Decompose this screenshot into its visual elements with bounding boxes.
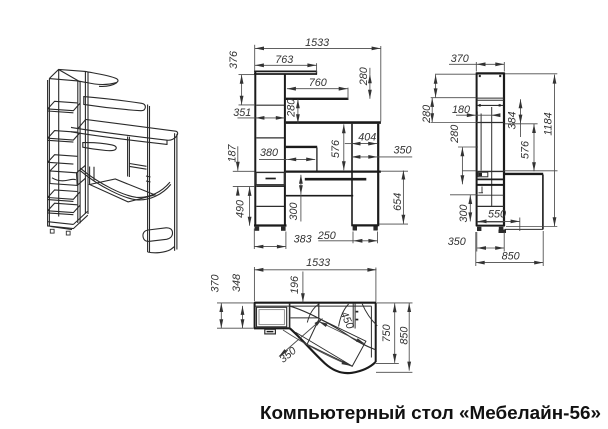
svg-text:280: 280 (286, 99, 298, 118)
svg-text:1184: 1184 (543, 112, 555, 135)
svg-text:370: 370 (209, 274, 221, 292)
svg-text:576: 576 (330, 140, 342, 158)
svg-text:763: 763 (275, 54, 293, 66)
svg-text:490: 490 (235, 200, 247, 218)
svg-text:550: 550 (488, 208, 506, 220)
svg-text:250: 250 (317, 230, 336, 242)
svg-text:760: 760 (309, 77, 327, 89)
svg-text:380: 380 (260, 147, 278, 159)
svg-text:404: 404 (358, 131, 376, 143)
svg-text:351: 351 (233, 107, 251, 119)
svg-text:654: 654 (392, 193, 404, 211)
svg-text:750: 750 (381, 324, 393, 342)
svg-text:180: 180 (452, 104, 470, 116)
svg-text:376: 376 (228, 51, 240, 69)
svg-text:370: 370 (451, 53, 469, 65)
svg-text:384: 384 (506, 111, 518, 129)
svg-text:196: 196 (289, 276, 301, 294)
svg-text:280: 280 (358, 67, 370, 86)
svg-text:187: 187 (227, 143, 239, 162)
svg-text:350: 350 (448, 236, 466, 248)
svg-text:1533: 1533 (305, 37, 329, 49)
svg-text:350: 350 (393, 145, 411, 157)
svg-text:850: 850 (502, 251, 520, 263)
svg-text:576: 576 (520, 141, 532, 159)
svg-text:300: 300 (458, 204, 470, 222)
svg-text:383: 383 (294, 233, 312, 245)
svg-text:350: 350 (277, 345, 299, 366)
svg-text:280: 280 (421, 105, 433, 124)
svg-text:850: 850 (399, 327, 411, 345)
svg-text:280: 280 (449, 125, 461, 144)
svg-text:1533: 1533 (306, 257, 330, 269)
svg-text:348: 348 (231, 274, 243, 292)
svg-text:300: 300 (288, 202, 300, 220)
